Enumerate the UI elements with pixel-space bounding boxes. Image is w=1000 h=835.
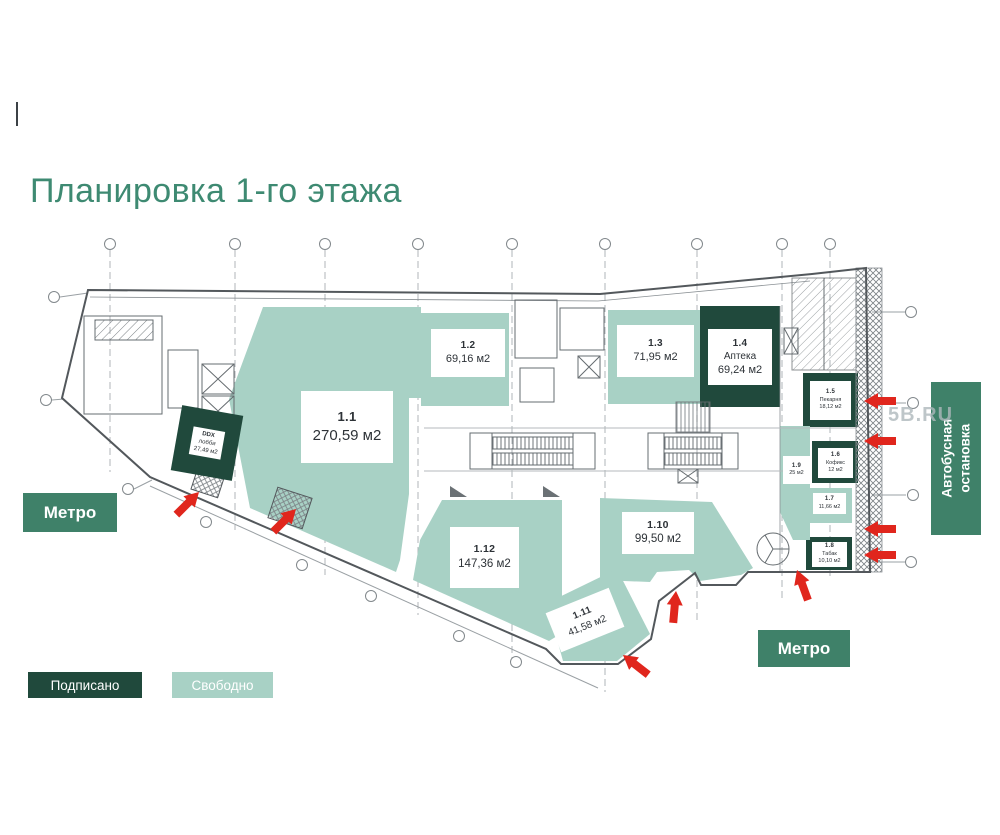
unit-number: 1.3	[648, 337, 663, 350]
unit-label-1-8: 1.8 Табак 10,10 м2	[812, 542, 847, 567]
watermark: 5B.RU	[888, 404, 953, 427]
unit-area-text: 12 м2	[828, 467, 843, 474]
unit-tenant: Табак	[822, 551, 837, 558]
unit-area-text: 18,12 м2	[819, 404, 841, 411]
legend: Подписано Свободно	[28, 672, 273, 698]
unit-area-text: 25 м2	[789, 470, 804, 477]
unit-number: 1.5	[826, 389, 835, 397]
unit-label-1-7: 1.7 11,66 м2	[813, 493, 846, 514]
unit-label-1-6: 1.6 Кофикс 12 м2	[818, 448, 853, 478]
unit-number: 1.1	[338, 409, 357, 426]
unit-label-1-12: 1.12 147,36 м2	[450, 527, 519, 588]
unit-label-1-5: 1.5 Пекарня 18,12 м2	[810, 381, 851, 420]
unit-number: 1.10	[647, 519, 669, 533]
unit-number: 1.6	[831, 452, 840, 460]
unit-area-text: 10,10 м2	[818, 558, 840, 565]
metro-label-left: Метро	[23, 493, 117, 532]
unit-label-1-4: 1.4 Аптека 69,24 м2	[708, 329, 772, 385]
unit-label-1-10: 1.10 99,50 м2	[622, 512, 694, 554]
unit-number: 1.8	[825, 543, 834, 551]
unit-number: 1.7	[825, 496, 834, 504]
unit-label-1-2: 1.2 69,16 м2	[431, 329, 505, 377]
unit-area-text: 71,95 м2	[633, 350, 677, 364]
unit-area-text: 69,16 м2	[446, 352, 490, 366]
unit-label-1-3: 1.3 71,95 м2	[617, 325, 694, 377]
legend-signed: Подписано	[28, 672, 142, 698]
unit-tenant: Пекарня	[820, 397, 842, 404]
unit-tenant: Кофикс	[826, 460, 845, 467]
unit-number: 1.12	[474, 543, 496, 557]
unit-label-ddx: DDX лобби 27,49 м2	[171, 405, 244, 481]
legend-free: Свободно	[172, 672, 273, 698]
unit-area-text: 147,36 м2	[458, 557, 511, 572]
unit-label-1-9: 1.9 25 м2	[783, 456, 810, 484]
unit-tenant: Аптека	[724, 350, 756, 363]
unit-area-text: 270,59 м2	[313, 426, 382, 446]
unit-number: 1.4	[733, 337, 748, 350]
unit-number: 1.9	[792, 463, 801, 471]
unit-number: 1.2	[461, 339, 476, 352]
slide: Планировка 1-го этажа	[0, 0, 1000, 835]
unit-label-1-1: 1.1 270,59 м2	[301, 391, 393, 463]
unit-area-text: 99,50 м2	[635, 532, 681, 547]
bus-stop-text: Автобусная остановка	[938, 419, 974, 498]
unit-area-text: 11,66 м2	[819, 504, 841, 511]
metro-label-right: Метро	[758, 630, 850, 667]
unit-area-text: 69,24 м2	[718, 363, 762, 377]
